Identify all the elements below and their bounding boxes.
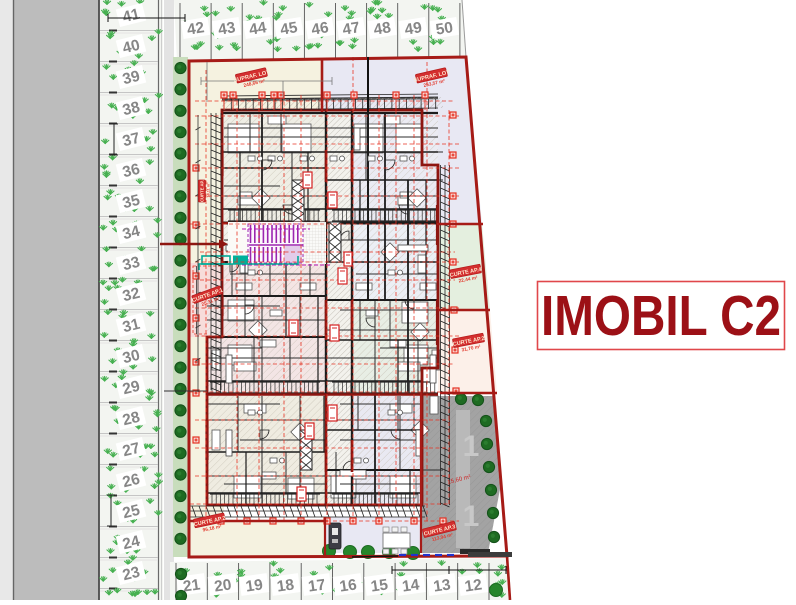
- svg-text:50: 50: [435, 19, 455, 38]
- svg-text:16: 16: [338, 576, 358, 595]
- svg-text:1: 1: [463, 500, 480, 533]
- svg-text:1: 1: [463, 430, 480, 463]
- svg-text:42: 42: [186, 19, 206, 38]
- svg-text:45: 45: [279, 19, 299, 39]
- svg-text:14: 14: [401, 576, 421, 595]
- svg-text:47: 47: [341, 19, 361, 38]
- svg-text:18,11 m²: 18,11 m²: [207, 182, 211, 198]
- svg-text:48: 48: [372, 19, 392, 39]
- svg-text:13: 13: [432, 576, 452, 595]
- svg-text:49: 49: [404, 19, 424, 39]
- svg-text:43: 43: [217, 19, 237, 39]
- svg-text:IMOBIL C2: IMOBIL C2: [541, 284, 781, 348]
- svg-text:15: 15: [370, 576, 390, 595]
- svg-text:18: 18: [276, 576, 296, 595]
- svg-text:12: 12: [464, 576, 483, 595]
- svg-text:20: 20: [213, 576, 232, 595]
- svg-text:CURTE AP.: CURTE AP.: [200, 180, 205, 202]
- svg-text:19: 19: [245, 576, 265, 595]
- svg-text:44: 44: [248, 19, 268, 39]
- svg-text:46: 46: [310, 19, 330, 39]
- svg-text:17: 17: [307, 576, 326, 595]
